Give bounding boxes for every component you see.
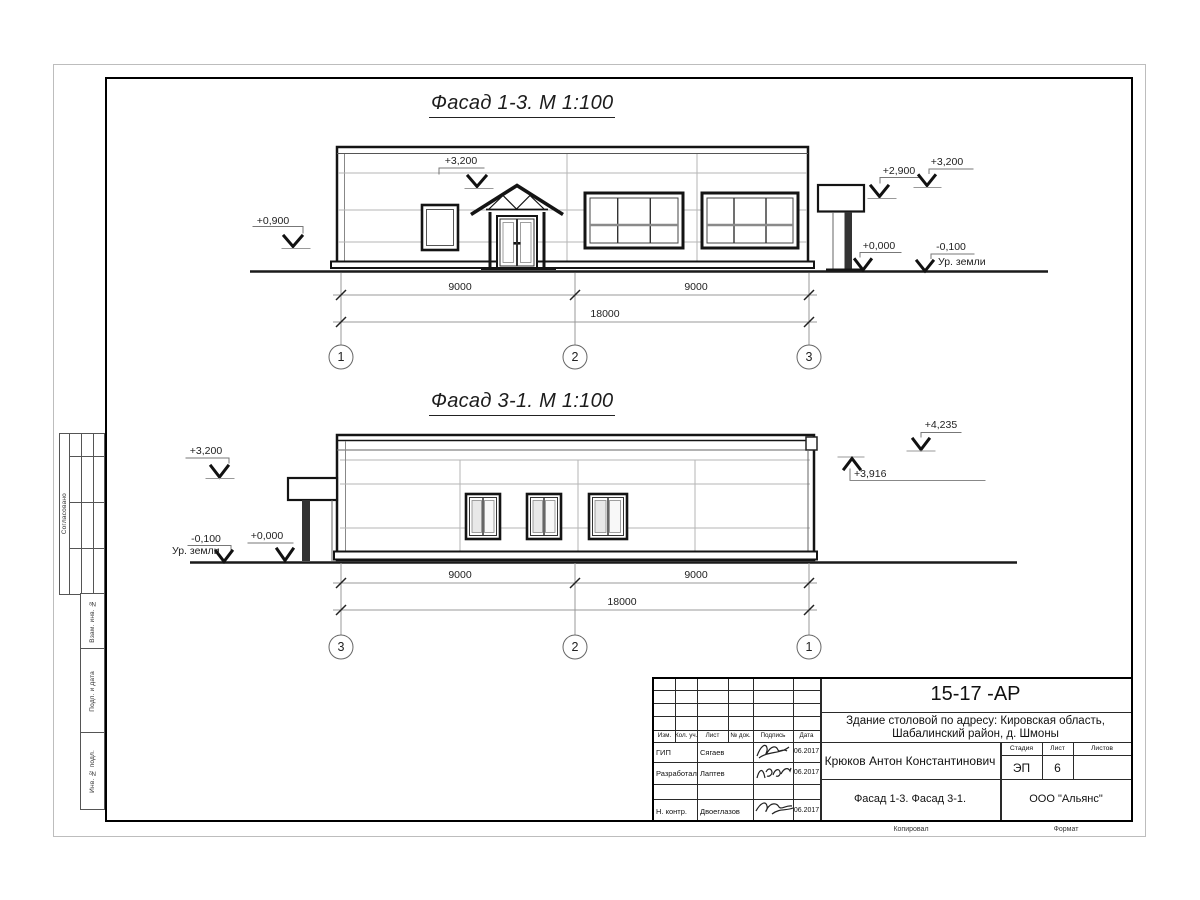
facade2-elev-3916: +3,916 xyxy=(854,469,886,480)
stage-label: Стадия xyxy=(1001,745,1042,752)
facade1-elev-3200-right: +3,200 xyxy=(931,157,963,168)
facade1-elev-2900: +2,900 xyxy=(883,166,915,177)
drawing-title: Фасад 1-3. Фасад 3-1. xyxy=(820,793,1000,805)
row-gip-role: ГИП xyxy=(656,748,671,757)
stamp-inv: Инв. № подл. xyxy=(80,732,105,810)
facade2-axis-2: 2 xyxy=(563,640,587,654)
drawing-sheet: { "facade1": { "title": "Фасад 1-3. М 1:… xyxy=(0,0,1200,900)
stage-value: ЭП xyxy=(1001,761,1042,775)
row-dev-role: Разработал xyxy=(656,769,697,778)
facade1-elev-0900: +0,900 xyxy=(257,216,289,227)
stamp-podp-label: Подп. и дата xyxy=(89,671,96,712)
facade1-axis-2: 2 xyxy=(563,350,587,364)
title-block: Изм. Кол. уч. Лист № док. Подпись Дата Г… xyxy=(652,677,1133,822)
th-sign: Подпись xyxy=(753,732,793,739)
project-line2: Шабалинский район, д. Шмоны xyxy=(820,728,1131,740)
row-gip-date: 06.2017 xyxy=(793,748,820,755)
facade2-elev-3200: +3,200 xyxy=(190,446,222,457)
facade1-dim-total: 18000 xyxy=(590,309,619,320)
facade1-axis-3: 3 xyxy=(797,350,821,364)
th-kol: Кол. уч. xyxy=(675,732,697,739)
th-izm: Изм. xyxy=(654,732,675,739)
row-gip-name: Сягаев xyxy=(700,748,724,757)
row-ncontr-date: 06.2017 xyxy=(793,807,820,814)
stamp-vzam-label: Взам. инв. № xyxy=(89,600,96,643)
stamp-podp: Подп. и дата xyxy=(80,648,105,734)
facade1-title: Фасад 1-3. М 1:100 xyxy=(429,92,615,118)
facade1-axis-1: 1 xyxy=(329,350,353,364)
facade2-axis-1: 1 xyxy=(797,640,821,654)
facade1-elev-3200-mid: +3,200 xyxy=(445,156,477,167)
facade1-small-window xyxy=(422,205,458,250)
facade2-axis-3: 3 xyxy=(329,640,353,654)
row-ncontr-role: Н. контр. xyxy=(656,807,687,816)
format-label: Формат xyxy=(1031,826,1101,833)
facade2-dim-right: 9000 xyxy=(684,570,707,581)
facade2-elev-minus-0100: -0,100 xyxy=(191,534,221,545)
th-list: Лист xyxy=(697,732,728,739)
sheets-label: Листов xyxy=(1073,745,1131,752)
facade1-dim-left: 9000 xyxy=(448,282,471,293)
company-name: ООО "Альянс" xyxy=(1001,793,1131,805)
stamp-approved-label: Согласовано xyxy=(61,493,68,534)
facade2-elev-4235: +4,235 xyxy=(925,420,957,431)
facade2-left-canopy xyxy=(288,478,337,561)
facade2-elev-0000: +0,000 xyxy=(251,531,283,542)
stamp-vzam: Взам. инв. № xyxy=(80,593,105,650)
row-dev-name: Лаптев xyxy=(700,769,725,778)
th-doc: № док. xyxy=(728,732,753,739)
facade2-dim-total: 18000 xyxy=(607,597,636,608)
row-dev-date: 06.2017 xyxy=(793,769,820,776)
row-ncontr-name: Двоеглазов xyxy=(700,807,740,816)
stamp-inv-label: Инв. № подл. xyxy=(89,750,96,793)
signature-dev xyxy=(754,763,792,783)
facade2-title: Фасад 3-1. М 1:100 xyxy=(429,390,615,416)
signature-ncontr xyxy=(754,797,794,819)
signature-gip xyxy=(754,740,792,763)
facade1-dim-right: 9000 xyxy=(684,282,707,293)
facade2-dim-left: 9000 xyxy=(448,570,471,581)
sheet-number: 6 xyxy=(1042,761,1073,775)
facade1-elev-0000: +0,000 xyxy=(863,241,895,252)
facade1-elev-minus-0100: -0,100 xyxy=(936,242,966,253)
project-line1: Здание столовой по адресу: Кировская обл… xyxy=(820,715,1131,727)
copied-label: Копировал xyxy=(876,826,946,833)
facade2-windows xyxy=(466,494,627,539)
author-name: Крюков Антон Константинович xyxy=(820,754,1000,768)
doc-number: 15-17 -АР xyxy=(820,683,1131,706)
th-date: Дата xyxy=(793,732,820,739)
facade1-right-canopy xyxy=(818,185,864,270)
sheet-label: Лист xyxy=(1042,745,1073,752)
approval-stamp-grid: Согласовано xyxy=(59,433,105,595)
facade1-ground-label: Ур. земли xyxy=(938,257,986,268)
facade2-ground-label: Ур. земли xyxy=(172,546,220,557)
